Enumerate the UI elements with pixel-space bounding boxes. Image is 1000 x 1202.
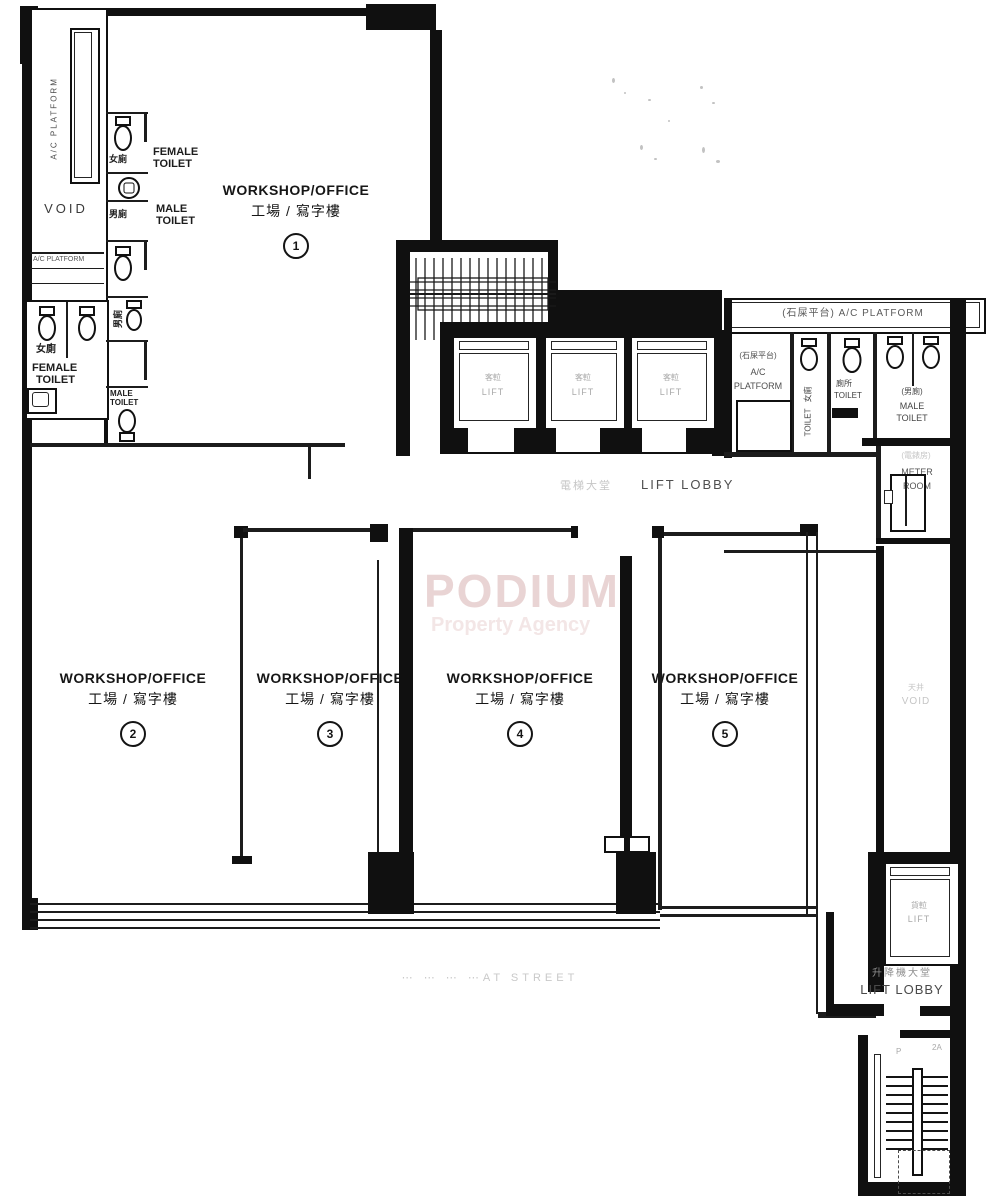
wing-platform-label: (石屎平台) (726, 352, 790, 361)
male-toilet-en: MALE (880, 402, 944, 412)
unit-label-3: WORKSHOP/OFFICE 工場 / 寫字樓 3 (235, 670, 425, 747)
unit-name-cn: 工場 / 寫字樓 (38, 689, 228, 709)
meter-room-cn: (電錶房) (884, 452, 948, 461)
wall (832, 408, 858, 418)
unit-number-badge: 1 (283, 233, 309, 259)
toilet-icon (920, 336, 942, 370)
faint-speck (624, 92, 626, 94)
strip-toilet-en: TOILET (805, 399, 814, 445)
male-toilet-en: TOILET (880, 414, 944, 424)
unit-number-badge: 5 (712, 721, 738, 747)
wall (876, 446, 881, 542)
wall (377, 560, 379, 852)
female-label: TOILET (153, 158, 192, 170)
female-toilet-cn: 女廁 (36, 344, 56, 355)
wall (912, 332, 914, 386)
stair-mark: 2A (932, 1044, 942, 1053)
toilet-icon (112, 246, 134, 282)
partition-wall (399, 528, 413, 906)
stall-divider (106, 112, 148, 114)
wall (724, 300, 732, 458)
unit-label-2: WORKSHOP/OFFICE 工場 / 寫字樓 2 (38, 670, 228, 747)
sink-icon (32, 392, 49, 407)
lift-label-en: LIFT (640, 388, 702, 398)
stair-handrail (874, 1054, 881, 1178)
stall-divider (106, 386, 148, 388)
male-toilet-cn: (男廁) (880, 388, 944, 397)
unit-number-badge: 3 (317, 721, 343, 747)
wall (660, 906, 818, 909)
faint-speck (716, 160, 720, 163)
toilet-icon (116, 408, 138, 442)
meter-cabinet-notch (884, 490, 893, 504)
wall (658, 532, 808, 536)
lift-lobby-top-cn: 電梯大堂 (560, 480, 612, 492)
lift-label-cn: 客𨋢 (552, 374, 614, 383)
stall-divider (144, 112, 147, 142)
stall-divider (106, 296, 148, 298)
faint-speck (712, 102, 715, 104)
female-cn-label: 女廁 (109, 155, 127, 165)
unit-name-en: WORKSHOP/OFFICE (235, 670, 425, 686)
wall (30, 252, 104, 254)
wall (806, 532, 808, 914)
partition-wall (620, 556, 632, 852)
corridor-faint-cn: 天井 (894, 684, 938, 693)
male-cn-label: 男廁 (109, 210, 127, 220)
stall-divider (106, 200, 148, 202)
male-cn-vertical: 男廁 (114, 304, 124, 334)
stall-divider (106, 340, 148, 342)
wall (658, 532, 662, 910)
watermark-subtitle: Property Agency (431, 614, 590, 636)
faint-speck (702, 147, 705, 153)
wall (396, 240, 558, 252)
toilet-icon (76, 306, 98, 342)
window-band (30, 919, 660, 921)
wall (816, 532, 818, 1014)
toilet-icon (798, 338, 820, 372)
unit-number-badge: 4 (507, 721, 533, 747)
window-band (30, 927, 660, 929)
unit-label-1: WORKSHOP/OFFICE 工場 / 寫字樓 1 (201, 182, 391, 259)
unit-name-cn: 工場 / 寫字樓 (201, 201, 391, 221)
unit-name-en: WORKSHOP/OFFICE (38, 670, 228, 686)
toilet-icon (884, 336, 906, 370)
lift-lobby-top-en: LIFT LOBBY (641, 478, 734, 492)
lift-door (551, 341, 617, 350)
wall (556, 290, 722, 326)
ac-platform-band-label: (石屎平台) A/C PLATFORM (728, 308, 978, 319)
sink-icon (116, 176, 142, 200)
lift-label-cn: 客𨋢 (462, 374, 524, 383)
faint-speck (668, 120, 670, 122)
unit-label-4: WORKSHOP/OFFICE 工場 / 寫字樓 4 (425, 670, 615, 747)
wall (232, 856, 252, 864)
lift-door-gap (556, 428, 600, 452)
watermark-title: PODIUM (424, 566, 620, 617)
wall (571, 526, 578, 538)
partition-wall (240, 530, 243, 860)
window-band (30, 911, 660, 913)
unit-number-badge: 2 (120, 721, 146, 747)
wall (826, 1004, 884, 1016)
wall (30, 443, 345, 447)
stair-landing-dashed (898, 1150, 950, 1194)
toilet-icon (840, 338, 864, 374)
ac-platform-vertical-label: A/C PLATFORM (51, 43, 60, 193)
stair-mark: P (896, 1048, 901, 1057)
wall (724, 550, 876, 553)
wall (827, 332, 831, 456)
void-label: VOID (38, 202, 94, 216)
lift-lobby-bottom-en: LIFT LOBBY (846, 983, 958, 997)
faint-speck (654, 158, 657, 160)
meter-cabinet (890, 474, 926, 532)
lift-door-gap (642, 428, 686, 452)
wall (873, 332, 877, 440)
toilet-room-cn: 廁所 (836, 380, 852, 389)
wall (900, 1030, 950, 1038)
toilet-room-en: TOILET (834, 392, 862, 401)
wall (30, 268, 104, 269)
stall-divider (144, 340, 147, 380)
wall (826, 912, 834, 1016)
door-block (628, 836, 650, 853)
wall (243, 528, 379, 532)
platform-inner (74, 32, 92, 178)
stall-divider (106, 240, 148, 242)
unit-name-cn: 工場 / 寫字樓 (425, 689, 615, 709)
wall (370, 524, 388, 542)
wall (876, 546, 884, 852)
lift-lobby-bottom-cn: 升降機大堂 (846, 968, 958, 979)
door-block (604, 836, 626, 853)
street-label: ⋯ ⋯ ⋯ ⋯AT STREET (310, 972, 670, 984)
female-toilet-en: TOILET (36, 374, 75, 386)
wall (950, 298, 966, 1196)
freight-lift-en: LIFT (892, 915, 946, 925)
faint-speck (640, 145, 643, 150)
wall (724, 452, 876, 457)
toilet-icon (124, 300, 144, 332)
lift-door (637, 341, 707, 350)
wall (858, 1035, 868, 1185)
male-toilet-small: TOILET (110, 399, 138, 408)
lift-door (459, 341, 529, 350)
stall-divider (106, 172, 148, 174)
stall-divider (66, 302, 68, 358)
wall (396, 240, 410, 456)
wall (366, 4, 436, 30)
floor-plan: PODIUM Property Agency A/C PLATFORM VOID… (0, 0, 1000, 1202)
male-label: MALE (156, 203, 187, 215)
faint-speck (700, 86, 703, 89)
toilet-icon (36, 306, 58, 342)
lift-door-gap (468, 428, 514, 452)
faint-speck (612, 78, 615, 83)
wing-platform-label: A/C (726, 368, 790, 378)
female-label: FEMALE (153, 146, 198, 158)
ac-platform-small-label: A/C PLATFORM (33, 256, 84, 264)
unit-name-cn: 工場 / 寫字樓 (235, 689, 425, 709)
unit-name-en: WORKSHOP/OFFICE (201, 182, 391, 198)
female-toilet-en: FEMALE (32, 362, 77, 374)
wall (616, 852, 656, 914)
meter-cabinet-divider (905, 476, 907, 526)
wall (368, 852, 414, 914)
wall (308, 445, 311, 479)
wall (430, 30, 442, 242)
male-label: TOILET (156, 215, 195, 227)
wall (660, 914, 818, 917)
lift-label-cn: 客𨋢 (640, 374, 702, 383)
window-band (30, 903, 660, 905)
toilet-icon (112, 116, 134, 152)
wall (920, 1006, 966, 1016)
corridor-faint-en: VOID (894, 696, 938, 707)
freight-lift-cn: 貨𨋢 (892, 902, 946, 911)
lift-door (890, 867, 950, 876)
platform-box (736, 400, 792, 452)
wall (30, 283, 104, 284)
faint-speck (648, 99, 651, 101)
lift-label-en: LIFT (462, 388, 524, 398)
wing-platform-label: PLATFORM (726, 382, 790, 392)
stall-divider (144, 240, 147, 270)
wall (652, 526, 664, 538)
unit-name-en: WORKSHOP/OFFICE (425, 670, 615, 686)
wall (413, 528, 573, 532)
lift-label-en: LIFT (552, 388, 614, 398)
